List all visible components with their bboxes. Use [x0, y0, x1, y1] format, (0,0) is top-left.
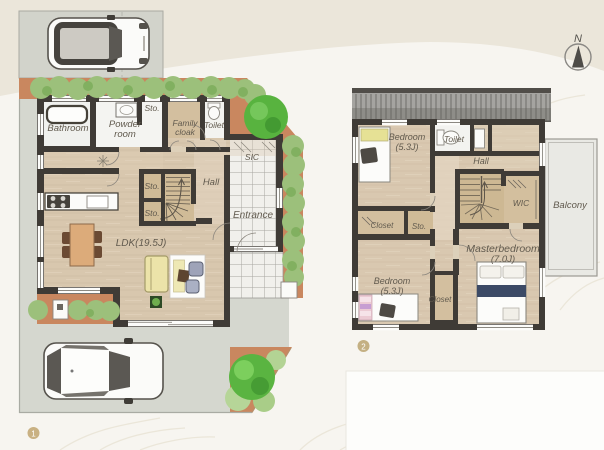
svg-text:Closet: Closet: [429, 295, 452, 304]
svg-text:Bedroom: Bedroom: [389, 132, 426, 142]
svg-text:Sto.: Sto.: [144, 103, 159, 113]
svg-text:Toilet: Toilet: [444, 134, 465, 144]
svg-text:Bedroom: Bedroom: [374, 276, 411, 286]
svg-text:room: room: [114, 129, 136, 140]
svg-text:1: 1: [31, 430, 36, 439]
svg-text:SIC: SIC: [245, 152, 260, 162]
svg-text:Hall: Hall: [203, 177, 220, 188]
svg-text:LDK(19.5J): LDK(19.5J): [116, 238, 167, 249]
svg-text:Sto.: Sto.: [412, 222, 426, 231]
svg-text:N: N: [574, 33, 582, 45]
svg-text:2: 2: [361, 343, 366, 352]
svg-text:Closet: Closet: [371, 221, 394, 230]
svg-text:cloak: cloak: [175, 127, 196, 137]
svg-text:Toilet: Toilet: [204, 120, 225, 130]
svg-text:Sto.: Sto.: [144, 208, 159, 218]
svg-text:Balcony: Balcony: [553, 200, 588, 211]
svg-text:Bathroom: Bathroom: [47, 123, 88, 134]
svg-text:Hall: Hall: [473, 156, 490, 166]
svg-text:Sto.: Sto.: [144, 181, 159, 191]
svg-text:WIC: WIC: [513, 198, 530, 208]
svg-text:Entrance: Entrance: [233, 210, 273, 221]
svg-text:(5.3J): (5.3J): [380, 286, 403, 296]
svg-text:(5.3J): (5.3J): [395, 142, 418, 152]
svg-text:(7.0J): (7.0J): [491, 254, 515, 265]
